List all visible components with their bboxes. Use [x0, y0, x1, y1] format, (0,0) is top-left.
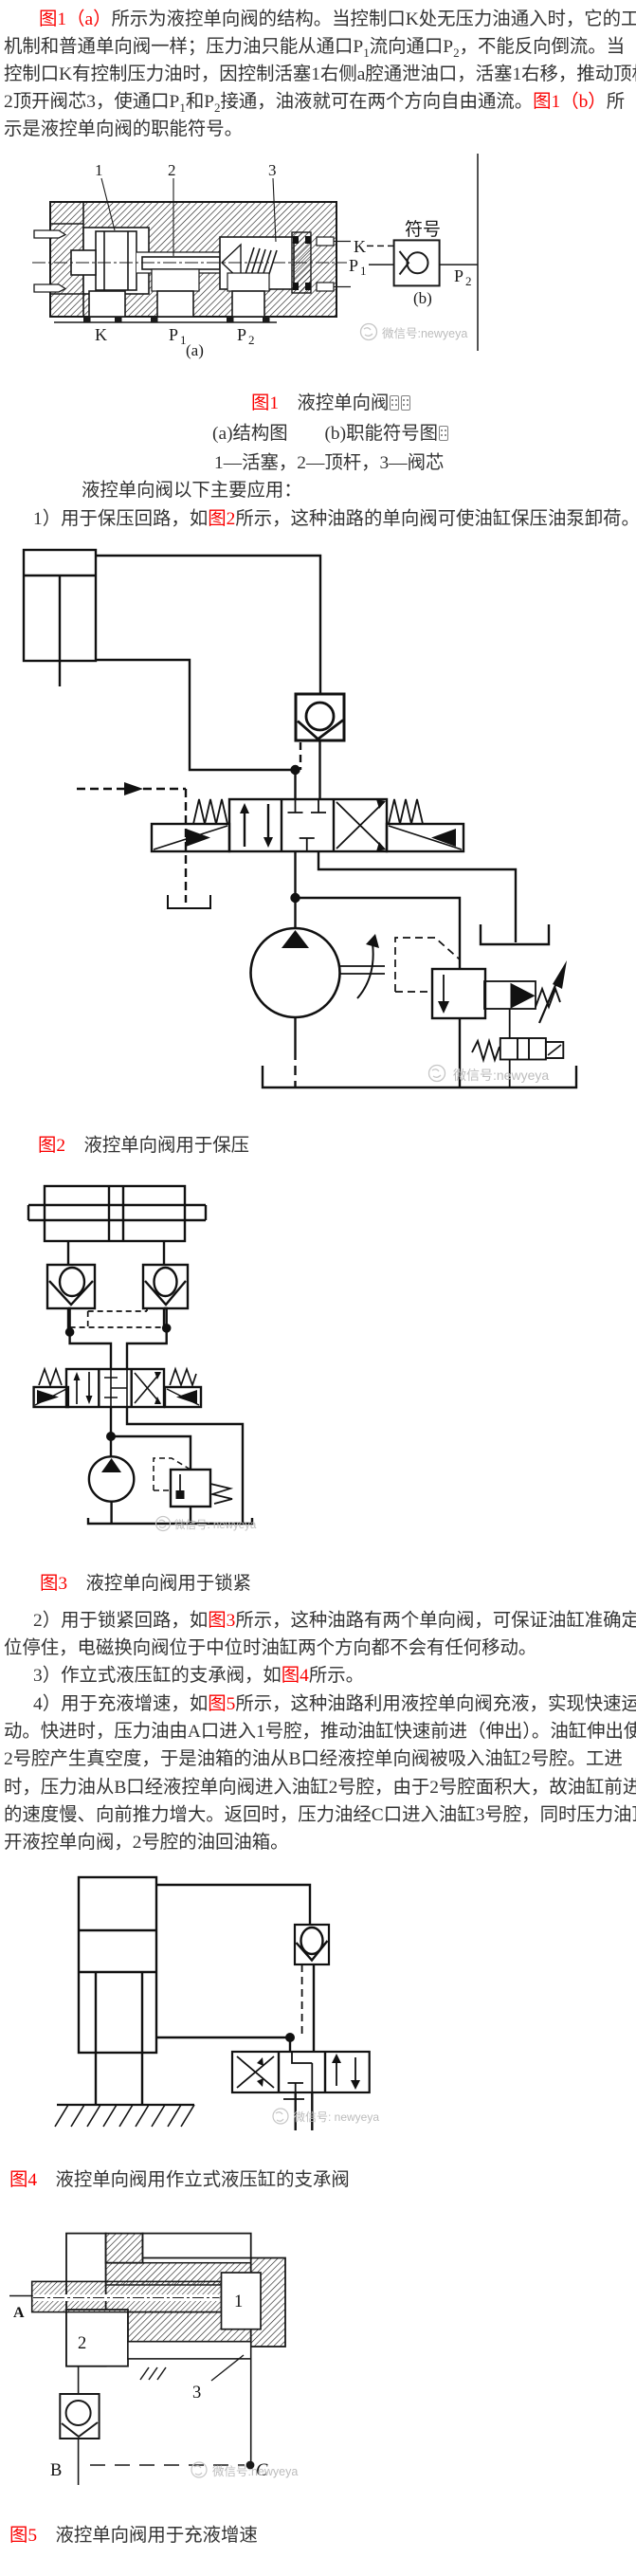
svg-text:微信号:newyeya: 微信号:newyeya — [382, 327, 467, 340]
svg-text:1: 1 — [234, 2293, 243, 2311]
svg-text:P: P — [169, 325, 178, 344]
svg-text:K: K — [95, 325, 107, 344]
svg-text:P: P — [237, 325, 246, 344]
svg-text:2: 2 — [78, 2334, 86, 2353]
svg-text:(b): (b) — [413, 289, 432, 307]
svg-text:A: A — [13, 2305, 25, 2321]
svg-text:K: K — [354, 237, 366, 256]
svg-text:3: 3 — [268, 161, 277, 179]
svg-text:1: 1 — [360, 264, 367, 278]
svg-text:微信号:newyeya: 微信号:newyeya — [453, 1068, 549, 1083]
svg-text:B: B — [50, 2461, 62, 2480]
svg-text:微信号: newyeya: 微信号: newyeya — [174, 1518, 257, 1531]
svg-text:微信号:newyeya: 微信号:newyeya — [212, 2465, 298, 2478]
svg-text:符号: 符号 — [405, 219, 441, 240]
svg-text:2: 2 — [465, 274, 472, 288]
svg-text:(a): (a) — [186, 341, 204, 359]
svg-text:2: 2 — [248, 333, 255, 347]
svg-text:3: 3 — [192, 2384, 201, 2402]
svg-text:P: P — [454, 266, 463, 285]
svg-text:P: P — [349, 256, 358, 275]
svg-text:微信号: newyeya: 微信号: newyeya — [294, 2110, 379, 2124]
svg-text:2: 2 — [168, 161, 176, 179]
svg-text:1: 1 — [95, 161, 103, 179]
